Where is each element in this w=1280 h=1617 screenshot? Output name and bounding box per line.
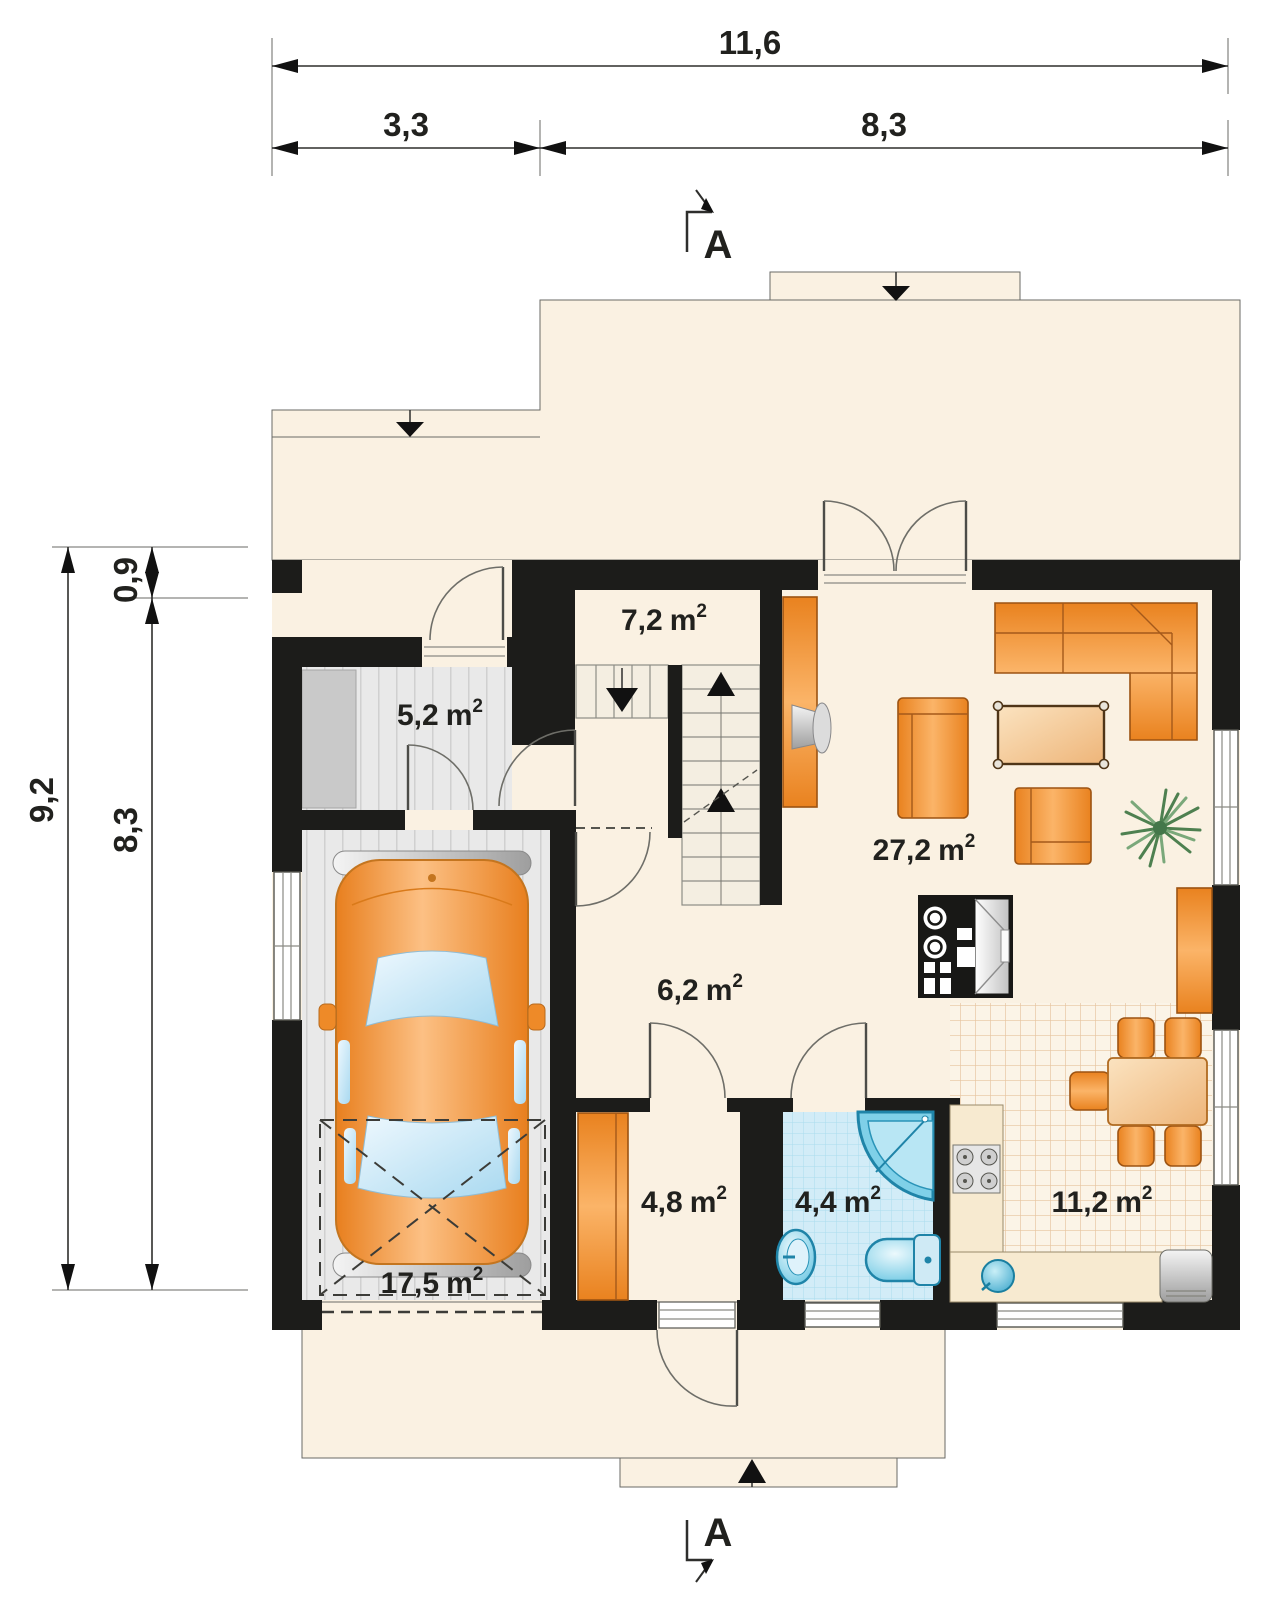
pantry-wardrobe [578, 1113, 628, 1300]
section-marker-top: A [687, 190, 732, 267]
dimension-left: 9,2 0,9 8,3 [23, 547, 248, 1290]
car-mirror [319, 1004, 336, 1030]
car-mirror [528, 1004, 545, 1030]
floor-plan-page: 5,2m2 7,2m2 27,2m2 6,2m2 17,5m2 4,8m2 4,… [0, 0, 1280, 1617]
dim-width-left: 3,3 [383, 106, 429, 143]
dining-chair [1070, 1072, 1110, 1110]
kitchen-window [997, 1303, 1123, 1327]
room-label-living-room: 27,2m2 [873, 831, 976, 867]
washbasin [777, 1230, 815, 1284]
garage-window [274, 872, 300, 1020]
dining-chair [1165, 1126, 1201, 1166]
toilet [866, 1235, 940, 1285]
dim-total-height: 9,2 [23, 777, 60, 823]
living-room-window [1214, 730, 1238, 885]
dim-height-bottom: 8,3 [107, 807, 144, 853]
dining-table [1108, 1058, 1207, 1125]
fireplace-stove [918, 895, 1013, 998]
dimension-top: 11,6 3,3 8,3 [272, 24, 1228, 176]
car-rear-window [358, 1116, 506, 1198]
section-letter-top: A [704, 223, 733, 267]
car-windshield [366, 951, 498, 1026]
bathroom-window [805, 1303, 880, 1327]
floor-plan-drawing: 5,2m2 7,2m2 27,2m2 6,2m2 17,5m2 4,8m2 4,… [0, 0, 1280, 1617]
dining-window [1214, 1030, 1238, 1185]
dining-chair [1118, 1018, 1154, 1058]
room-label-kitchen: 11,2m2 [1052, 1183, 1153, 1219]
dining-chair [1118, 1126, 1154, 1166]
room-label-garage: 17,5m2 [381, 1264, 484, 1300]
vestibule-counter [302, 670, 356, 808]
dining-chair [1165, 1018, 1201, 1058]
dim-width-right: 8,3 [861, 106, 907, 143]
armchair [898, 698, 968, 818]
dim-height-top: 0,9 [107, 557, 144, 603]
section-marker-bottom: A [687, 1511, 732, 1582]
kitchen-appliance [1160, 1250, 1212, 1302]
gas-hob [953, 1145, 1000, 1193]
section-letter-bottom: A [704, 1511, 733, 1555]
dim-total-width: 11,6 [719, 24, 781, 61]
sideboard [1177, 888, 1212, 1013]
coffee-table [994, 702, 1109, 769]
tv-cabinet [783, 597, 817, 807]
rear-terrace [272, 272, 1240, 560]
car [319, 851, 545, 1277]
pouf [1015, 788, 1091, 864]
wall-pillar [272, 560, 302, 593]
